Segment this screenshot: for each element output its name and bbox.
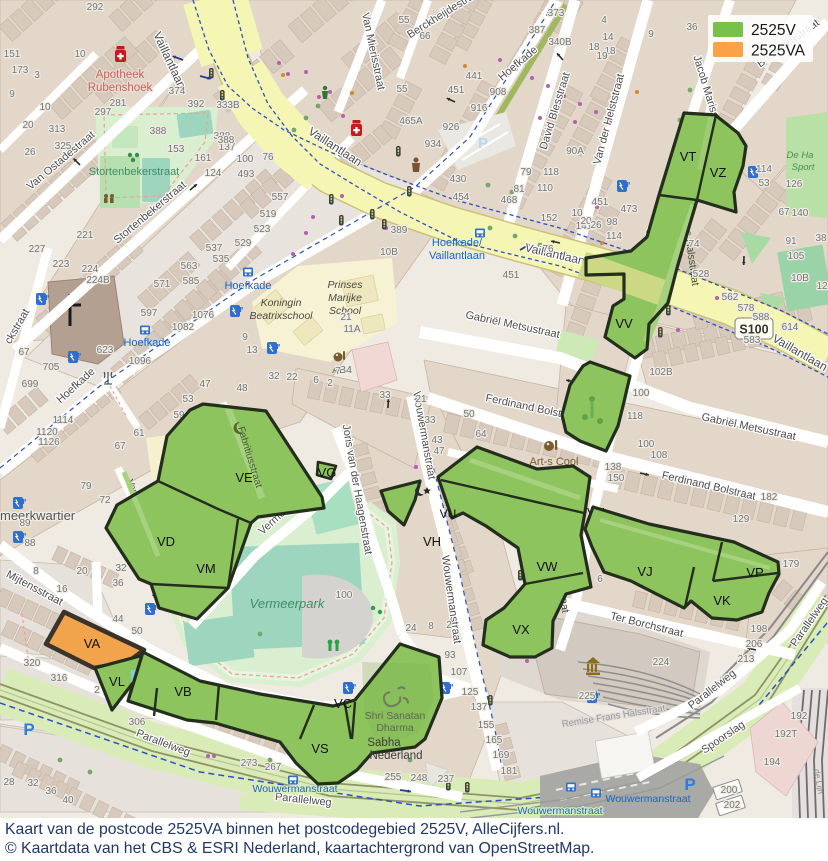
svg-text:36: 36 bbox=[45, 786, 57, 797]
svg-text:Hoefkade: Hoefkade bbox=[123, 337, 170, 349]
svg-text:916: 916 bbox=[471, 103, 488, 114]
svg-text:20: 20 bbox=[22, 120, 34, 131]
svg-text:7: 7 bbox=[335, 366, 341, 377]
svg-text:557: 557 bbox=[272, 192, 289, 203]
svg-text:Wouwermanstraat: Wouwermanstraat bbox=[605, 793, 690, 805]
svg-text:53: 53 bbox=[758, 178, 770, 189]
svg-text:623: 623 bbox=[97, 345, 114, 356]
svg-text:125: 125 bbox=[462, 687, 479, 698]
svg-text:1082: 1082 bbox=[172, 322, 195, 333]
svg-text:118: 118 bbox=[627, 411, 643, 422]
svg-text:10: 10 bbox=[39, 102, 51, 113]
svg-text:227: 227 bbox=[29, 244, 46, 255]
svg-text:1076: 1076 bbox=[192, 310, 215, 321]
svg-text:14: 14 bbox=[602, 32, 614, 43]
svg-text:26: 26 bbox=[590, 220, 602, 231]
svg-text:P: P bbox=[23, 720, 34, 739]
svg-text:6: 6 bbox=[313, 375, 319, 386]
svg-text:VK: VK bbox=[713, 593, 731, 608]
svg-text:48: 48 bbox=[236, 383, 248, 394]
svg-text:107: 107 bbox=[451, 667, 468, 678]
svg-text:67: 67 bbox=[114, 441, 126, 452]
svg-text:224: 224 bbox=[653, 657, 670, 668]
svg-text:192: 192 bbox=[791, 711, 808, 722]
svg-text:50: 50 bbox=[463, 409, 475, 420]
svg-text:563: 563 bbox=[181, 261, 198, 272]
svg-text:98: 98 bbox=[606, 217, 618, 228]
svg-text:8: 8 bbox=[33, 566, 39, 577]
svg-text:44: 44 bbox=[112, 614, 124, 625]
svg-text:151: 151 bbox=[4, 49, 21, 60]
svg-text:155: 155 bbox=[478, 720, 495, 731]
svg-text:161: 161 bbox=[195, 153, 212, 164]
svg-text:908: 908 bbox=[490, 87, 507, 98]
svg-text:389: 389 bbox=[391, 225, 408, 236]
svg-text:934: 934 bbox=[425, 139, 442, 150]
svg-text:387: 387 bbox=[529, 25, 546, 36]
svg-text:373: 373 bbox=[548, 8, 565, 19]
svg-text:meerkwartier: meerkwartier bbox=[0, 508, 76, 523]
svg-text:588: 588 bbox=[753, 312, 770, 323]
svg-text:VA: VA bbox=[84, 636, 101, 651]
svg-text:88: 88 bbox=[24, 538, 36, 549]
svg-text:206: 206 bbox=[746, 639, 763, 650]
svg-text:67: 67 bbox=[18, 347, 30, 358]
svg-text:9: 9 bbox=[9, 89, 15, 100]
svg-text:Vaillantlaan: Vaillantlaan bbox=[429, 250, 485, 262]
svg-text:VZ: VZ bbox=[710, 165, 727, 180]
svg-text:451: 451 bbox=[592, 197, 609, 208]
svg-text:Stortenbekerstraat: Stortenbekerstraat bbox=[89, 166, 180, 178]
svg-text:93: 93 bbox=[444, 650, 456, 661]
svg-text:138: 138 bbox=[605, 462, 622, 473]
svg-text:79: 79 bbox=[520, 167, 532, 178]
svg-text:64: 64 bbox=[475, 429, 487, 440]
svg-text:2: 2 bbox=[446, 620, 452, 631]
svg-text:50: 50 bbox=[131, 626, 143, 637]
svg-text:114: 114 bbox=[756, 164, 772, 175]
svg-text:585: 585 bbox=[183, 276, 200, 287]
svg-text:81: 81 bbox=[513, 184, 525, 195]
svg-text:102B: 102B bbox=[649, 367, 673, 378]
svg-text:198: 198 bbox=[751, 624, 768, 635]
svg-text:33: 33 bbox=[424, 415, 436, 426]
svg-text:43: 43 bbox=[431, 435, 443, 446]
svg-text:100: 100 bbox=[638, 439, 655, 450]
svg-text:333B: 333B bbox=[216, 100, 240, 111]
svg-text:1126: 1126 bbox=[38, 437, 60, 448]
svg-text:47: 47 bbox=[199, 379, 211, 390]
svg-text:36: 36 bbox=[112, 578, 124, 589]
svg-text:Beatrixschool: Beatrixschool bbox=[249, 310, 313, 322]
svg-text:292: 292 bbox=[87, 2, 104, 13]
svg-text:VT: VT bbox=[680, 149, 697, 164]
svg-text:926: 926 bbox=[443, 122, 460, 133]
svg-text:179: 179 bbox=[783, 559, 800, 570]
svg-text:19: 19 bbox=[596, 51, 608, 62]
svg-text:VE: VE bbox=[235, 470, 253, 485]
svg-text:VU: VU bbox=[440, 507, 457, 521]
svg-text:VM: VM bbox=[196, 561, 216, 576]
svg-text:562: 562 bbox=[722, 292, 739, 303]
svg-text:320: 320 bbox=[24, 658, 41, 669]
svg-text:223: 223 bbox=[53, 259, 70, 270]
svg-text:273: 273 bbox=[241, 758, 258, 769]
svg-text:529: 529 bbox=[235, 238, 252, 249]
svg-text:Vermeerpark: Vermeerpark bbox=[250, 596, 326, 611]
svg-text:105: 105 bbox=[788, 251, 805, 262]
svg-text:340B: 340B bbox=[548, 37, 572, 48]
svg-text:110: 110 bbox=[537, 183, 553, 194]
svg-text:21: 21 bbox=[340, 312, 352, 323]
svg-text:152: 152 bbox=[541, 213, 558, 224]
svg-text:173: 173 bbox=[12, 65, 29, 76]
svg-text:316: 316 bbox=[51, 673, 68, 684]
svg-text:237: 237 bbox=[438, 774, 455, 785]
svg-text:281: 281 bbox=[110, 98, 127, 109]
svg-text:28: 28 bbox=[3, 777, 15, 788]
svg-text:32: 32 bbox=[268, 371, 280, 382]
svg-text:10: 10 bbox=[74, 49, 86, 60]
svg-text:36: 36 bbox=[686, 22, 698, 33]
svg-text:2525VA: 2525VA bbox=[751, 43, 806, 60]
svg-text:100: 100 bbox=[237, 154, 254, 165]
svg-text:597: 597 bbox=[141, 308, 158, 319]
svg-text:108: 108 bbox=[651, 450, 668, 461]
svg-text:9: 9 bbox=[648, 29, 654, 40]
svg-text:1096: 1096 bbox=[129, 356, 152, 367]
svg-text:297: 297 bbox=[95, 107, 112, 118]
svg-text:Sport: Sport bbox=[792, 162, 815, 173]
svg-text:P: P bbox=[478, 135, 488, 152]
svg-text:313: 313 bbox=[49, 124, 66, 135]
svg-text:224B: 224B bbox=[86, 275, 110, 286]
svg-text:10B: 10B bbox=[791, 273, 809, 284]
svg-text:20: 20 bbox=[76, 566, 88, 577]
svg-text:451: 451 bbox=[503, 270, 520, 281]
svg-text:267: 267 bbox=[265, 762, 282, 773]
svg-text:76: 76 bbox=[262, 152, 274, 163]
svg-text:33: 33 bbox=[379, 390, 391, 401]
svg-text:Prinses: Prinses bbox=[327, 279, 363, 291]
svg-text:221: 221 bbox=[77, 230, 94, 241]
svg-text:535: 535 bbox=[213, 254, 230, 265]
svg-text:129: 129 bbox=[733, 514, 750, 525]
svg-text:137: 137 bbox=[471, 702, 488, 713]
svg-text:89: 89 bbox=[19, 518, 31, 529]
svg-text:114: 114 bbox=[606, 231, 622, 242]
svg-text:194: 194 bbox=[764, 757, 781, 768]
svg-text:VD: VD bbox=[157, 534, 175, 549]
svg-text:Sabha: Sabha bbox=[367, 737, 401, 749]
svg-text:2: 2 bbox=[94, 685, 100, 696]
svg-text:Dharma: Dharma bbox=[376, 722, 414, 734]
svg-text:16: 16 bbox=[56, 584, 68, 595]
svg-text:90A: 90A bbox=[566, 146, 584, 157]
svg-text:126: 126 bbox=[786, 179, 803, 190]
svg-text:72: 72 bbox=[99, 495, 111, 506]
svg-text:118: 118 bbox=[543, 167, 559, 178]
svg-text:454: 454 bbox=[453, 192, 470, 203]
svg-text:24: 24 bbox=[405, 623, 417, 634]
svg-text:705: 705 bbox=[43, 362, 60, 373]
svg-text:9: 9 bbox=[242, 332, 248, 343]
svg-text:12: 12 bbox=[816, 281, 828, 292]
svg-text:Marijke: Marijke bbox=[328, 292, 362, 304]
svg-text:150: 150 bbox=[608, 473, 625, 484]
svg-text:Hoefkade/: Hoefkade/ bbox=[432, 237, 483, 249]
svg-text:66: 66 bbox=[419, 31, 431, 42]
svg-text:26: 26 bbox=[24, 147, 36, 158]
svg-text:192T: 192T bbox=[775, 729, 798, 740]
svg-text:255: 255 bbox=[385, 772, 402, 783]
svg-text:47: 47 bbox=[433, 446, 445, 457]
svg-text:74: 74 bbox=[688, 239, 700, 250]
svg-text:182: 182 bbox=[761, 492, 778, 503]
svg-text:VJ: VJ bbox=[637, 564, 652, 579]
svg-text:213: 213 bbox=[738, 654, 755, 665]
svg-text:583: 583 bbox=[744, 335, 761, 346]
svg-text:Rubenshoek: Rubenshoek bbox=[88, 82, 153, 94]
svg-text:De Ha: De Ha bbox=[787, 150, 814, 161]
svg-text:21: 21 bbox=[415, 394, 427, 405]
svg-text:13: 13 bbox=[246, 345, 258, 356]
svg-text:528: 528 bbox=[693, 269, 710, 280]
svg-text:Koningin: Koningin bbox=[261, 297, 302, 309]
svg-text:VW: VW bbox=[537, 559, 559, 574]
svg-text:2525V: 2525V bbox=[751, 22, 796, 39]
svg-text:76: 76 bbox=[542, 244, 554, 255]
svg-text:468: 468 bbox=[501, 195, 518, 206]
svg-text:61: 61 bbox=[133, 428, 145, 439]
svg-text:Apotheek: Apotheek bbox=[96, 69, 145, 81]
svg-text:537: 537 bbox=[206, 243, 223, 254]
svg-text:523: 523 bbox=[254, 224, 271, 235]
svg-text:67: 67 bbox=[778, 207, 790, 218]
svg-text:140: 140 bbox=[792, 208, 809, 219]
svg-text:55: 55 bbox=[396, 84, 408, 95]
svg-text:VB: VB bbox=[174, 684, 191, 699]
svg-text:200: 200 bbox=[721, 785, 738, 796]
svg-text:441: 441 bbox=[466, 71, 483, 82]
svg-text:473: 473 bbox=[621, 204, 638, 215]
svg-text:4: 4 bbox=[601, 15, 607, 26]
svg-text:1114: 1114 bbox=[53, 415, 74, 426]
svg-text:32: 32 bbox=[27, 778, 39, 789]
svg-text:22: 22 bbox=[286, 372, 298, 383]
svg-text:Kaart van de postcode 2525VA b: Kaart van de postcode 2525VA binnen het … bbox=[5, 821, 564, 838]
svg-text:P: P bbox=[684, 775, 695, 794]
svg-text:VV: VV bbox=[615, 316, 633, 331]
svg-text:430: 430 bbox=[450, 174, 467, 185]
svg-text:55: 55 bbox=[398, 15, 410, 26]
svg-text:Wouwermanstraat: Wouwermanstraat bbox=[517, 805, 602, 817]
svg-text:100: 100 bbox=[336, 590, 353, 601]
svg-text:392: 392 bbox=[188, 99, 205, 110]
svg-text:374: 374 bbox=[169, 86, 186, 97]
svg-text:169: 169 bbox=[493, 750, 510, 761]
svg-text:VP: VP bbox=[746, 565, 763, 580]
svg-text:493: 493 bbox=[238, 169, 255, 180]
svg-text:248: 248 bbox=[411, 773, 428, 784]
svg-text:40: 40 bbox=[62, 795, 74, 806]
svg-text:519: 519 bbox=[260, 209, 277, 220]
svg-text:VS: VS bbox=[311, 741, 329, 756]
svg-text:VL: VL bbox=[109, 674, 125, 689]
svg-text:465A: 465A bbox=[399, 116, 423, 127]
svg-text:165: 165 bbox=[486, 735, 503, 746]
svg-text:VC: VC bbox=[334, 696, 352, 711]
svg-text:153: 153 bbox=[168, 144, 185, 155]
svg-text:100: 100 bbox=[633, 388, 650, 399]
svg-text:32: 32 bbox=[115, 563, 127, 574]
svg-text:571: 571 bbox=[154, 279, 171, 290]
svg-text:38: 38 bbox=[815, 233, 827, 244]
svg-text:388: 388 bbox=[150, 126, 167, 137]
svg-text:8: 8 bbox=[428, 621, 434, 632]
svg-text:VG: VG bbox=[318, 465, 337, 480]
svg-text:VH: VH bbox=[423, 534, 441, 549]
svg-text:11A: 11A bbox=[343, 324, 360, 335]
svg-text:79: 79 bbox=[80, 481, 92, 492]
svg-text:91: 91 bbox=[785, 236, 797, 247]
svg-text:202: 202 bbox=[724, 800, 741, 811]
svg-text:2: 2 bbox=[327, 378, 333, 389]
svg-text:224: 224 bbox=[82, 264, 99, 275]
svg-text:6: 6 bbox=[597, 574, 603, 585]
svg-text:Nederland: Nederland bbox=[369, 750, 422, 762]
svg-text:© Kaartdata van het CBS & ESRI: © Kaartdata van het CBS & ESRI Nederland… bbox=[5, 840, 594, 857]
svg-text:181: 181 bbox=[501, 766, 518, 777]
svg-text:306: 306 bbox=[129, 717, 146, 728]
svg-text:10B: 10B bbox=[380, 247, 398, 258]
svg-text:3: 3 bbox=[34, 70, 40, 81]
svg-text:614: 614 bbox=[782, 322, 799, 333]
svg-text:Hoefkade: Hoefkade bbox=[224, 280, 271, 292]
svg-text:451: 451 bbox=[448, 85, 465, 96]
svg-text:225: 225 bbox=[579, 691, 596, 702]
svg-text:Shri Sanatan: Shri Sanatan bbox=[365, 710, 426, 722]
svg-text:VX: VX bbox=[512, 622, 530, 637]
svg-text:325: 325 bbox=[55, 141, 72, 152]
svg-text:124: 124 bbox=[205, 168, 222, 179]
svg-text:53: 53 bbox=[182, 394, 194, 405]
svg-text:699: 699 bbox=[22, 379, 39, 390]
svg-text:388: 388 bbox=[218, 135, 235, 146]
